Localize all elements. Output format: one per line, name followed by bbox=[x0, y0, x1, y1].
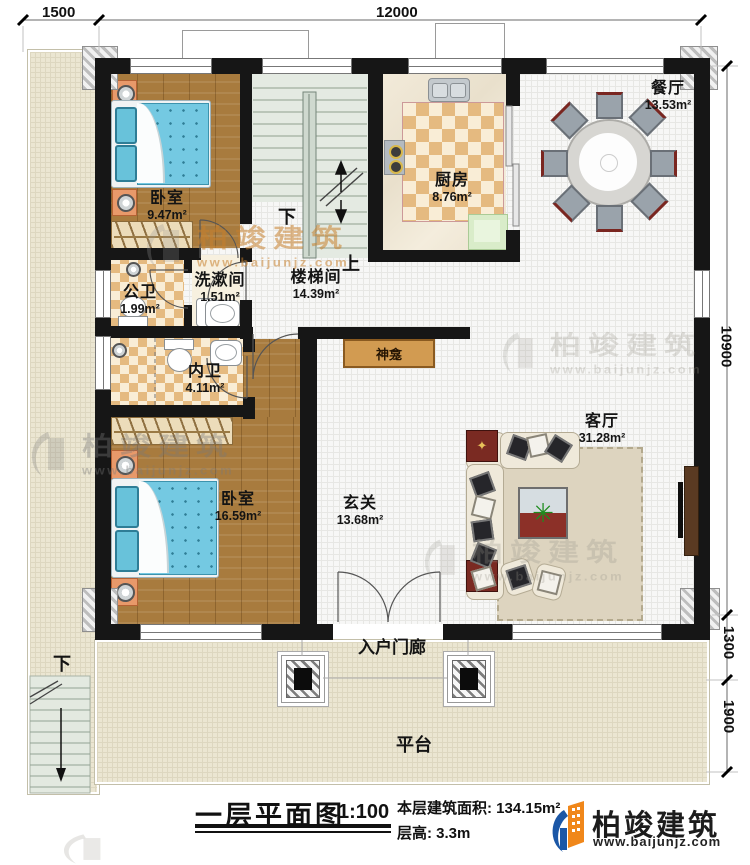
window bbox=[694, 270, 710, 318]
wall bbox=[184, 255, 192, 273]
room-label-bedroom1: 卧室9.47m² bbox=[147, 190, 187, 222]
kitchen-sink bbox=[428, 78, 470, 102]
wall bbox=[95, 405, 255, 417]
window bbox=[130, 58, 212, 74]
terrace-down-label: 下 bbox=[53, 650, 71, 676]
room-label-washroom: 洗漱间1.51m² bbox=[194, 272, 245, 304]
wardrobe bbox=[111, 221, 193, 250]
wall bbox=[95, 326, 245, 338]
room-label-entry: 玄关13.68m² bbox=[337, 495, 384, 527]
platform-left-strip bbox=[28, 50, 99, 794]
dining-chair bbox=[596, 92, 623, 119]
dining-chair bbox=[541, 150, 568, 177]
porch-column bbox=[281, 655, 325, 703]
room-label-dining: 餐厅13.53m² bbox=[645, 80, 692, 112]
wall bbox=[243, 339, 255, 352]
wall bbox=[240, 300, 252, 327]
window bbox=[140, 624, 262, 640]
wall bbox=[506, 74, 520, 106]
drawing-scale: 1:100 bbox=[338, 801, 389, 824]
window bbox=[95, 336, 111, 390]
kitchen-tile-mat bbox=[402, 102, 504, 222]
shrine-label: 神龛 bbox=[376, 344, 402, 363]
nightstand bbox=[112, 189, 137, 216]
bed bbox=[111, 100, 211, 188]
title-underline-thin bbox=[195, 831, 391, 833]
floor-plan: 神龛 ✦ ✦ ✳ bbox=[0, 0, 750, 865]
brand-website: www.baijunjz.com bbox=[593, 834, 721, 849]
ceiling-lamp bbox=[112, 343, 127, 358]
tv bbox=[678, 482, 683, 538]
porch-column bbox=[447, 655, 491, 703]
room-label-kitchen: 厨房8.76m² bbox=[432, 172, 472, 204]
platform-label: 平台 bbox=[396, 731, 432, 757]
bed bbox=[111, 478, 219, 578]
shrine-cabinet: 神龛 bbox=[343, 339, 435, 368]
brand-logo-icon bbox=[548, 798, 590, 858]
window bbox=[262, 58, 352, 74]
dimension-12000: 12000 bbox=[376, 4, 418, 21]
window bbox=[408, 58, 502, 74]
tv-cabinet bbox=[684, 466, 699, 556]
wall bbox=[300, 339, 317, 624]
room-label-stairwell: 楼梯间14.39m² bbox=[290, 269, 341, 301]
kitchen-flue-box bbox=[435, 23, 505, 60]
stair-up-label: 上 bbox=[342, 250, 360, 276]
coffee-table: ✳ bbox=[518, 487, 568, 539]
wall bbox=[506, 230, 520, 262]
window bbox=[512, 624, 662, 640]
watermark-logo-icon bbox=[46, 832, 116, 865]
platform-bottom-strip bbox=[95, 640, 709, 784]
wardrobe bbox=[111, 417, 233, 445]
room-label-ensuite: 内卫4.11m² bbox=[186, 363, 225, 395]
stair-down-label: 下 bbox=[278, 203, 296, 229]
dimension-10900: 10900 bbox=[717, 326, 734, 368]
wall bbox=[240, 327, 253, 339]
wall bbox=[368, 74, 383, 250]
dimension-1900: 1900 bbox=[720, 700, 737, 733]
dining-chair bbox=[596, 205, 623, 232]
dimension-1300: 1300 bbox=[720, 626, 737, 659]
wall bbox=[368, 250, 518, 262]
stove bbox=[384, 140, 405, 175]
room-label-bedroom2: 卧室16.59m² bbox=[215, 491, 262, 523]
side-table: ✦ bbox=[466, 430, 498, 462]
fridge bbox=[468, 214, 508, 250]
title-underline bbox=[195, 824, 391, 828]
floor-area-line: 本层建筑面积: 134.15m² bbox=[397, 797, 560, 818]
wall bbox=[240, 248, 252, 262]
room-label-living: 客厅31.28m² bbox=[579, 413, 626, 445]
nightstand bbox=[111, 450, 138, 479]
sofa-cushion bbox=[471, 519, 495, 543]
stairwell-floor bbox=[252, 74, 368, 202]
wall bbox=[184, 305, 192, 326]
porch-label: 入户门廊 bbox=[358, 633, 426, 658]
floor-height-line: 层高: 3.3m bbox=[397, 822, 470, 843]
room-label-public-wc: 公卫1.99m² bbox=[120, 284, 160, 316]
wash-basin bbox=[205, 300, 240, 328]
dimension-1500: 1500 bbox=[42, 4, 75, 21]
stairwell-void-outline bbox=[182, 30, 309, 60]
ceiling-lamp bbox=[126, 262, 141, 277]
wall bbox=[240, 74, 252, 224]
window bbox=[546, 58, 664, 74]
wall bbox=[298, 327, 470, 339]
dining-chair bbox=[650, 150, 677, 177]
window bbox=[95, 270, 111, 318]
